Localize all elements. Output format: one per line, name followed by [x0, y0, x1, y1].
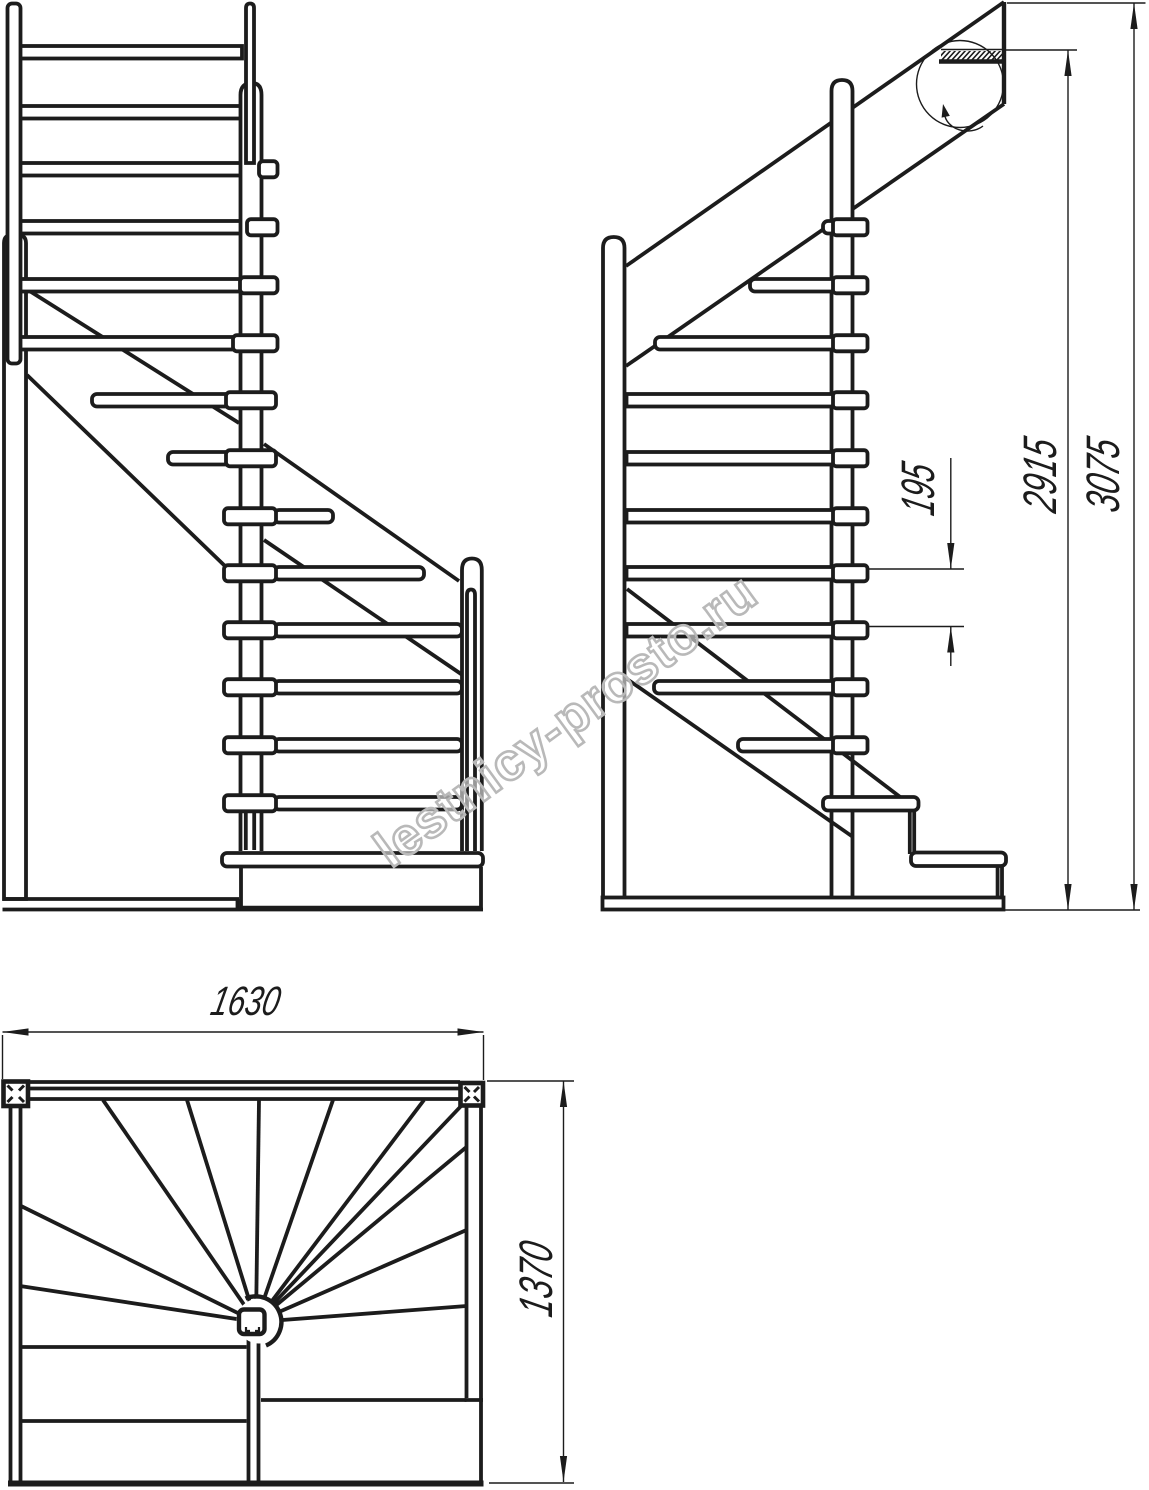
svg-text:1630: 1630: [207, 977, 285, 1023]
svg-text:2915: 2915: [1014, 433, 1066, 517]
svg-text:1370: 1370: [510, 1236, 562, 1321]
svg-text:3075: 3075: [1077, 433, 1129, 517]
